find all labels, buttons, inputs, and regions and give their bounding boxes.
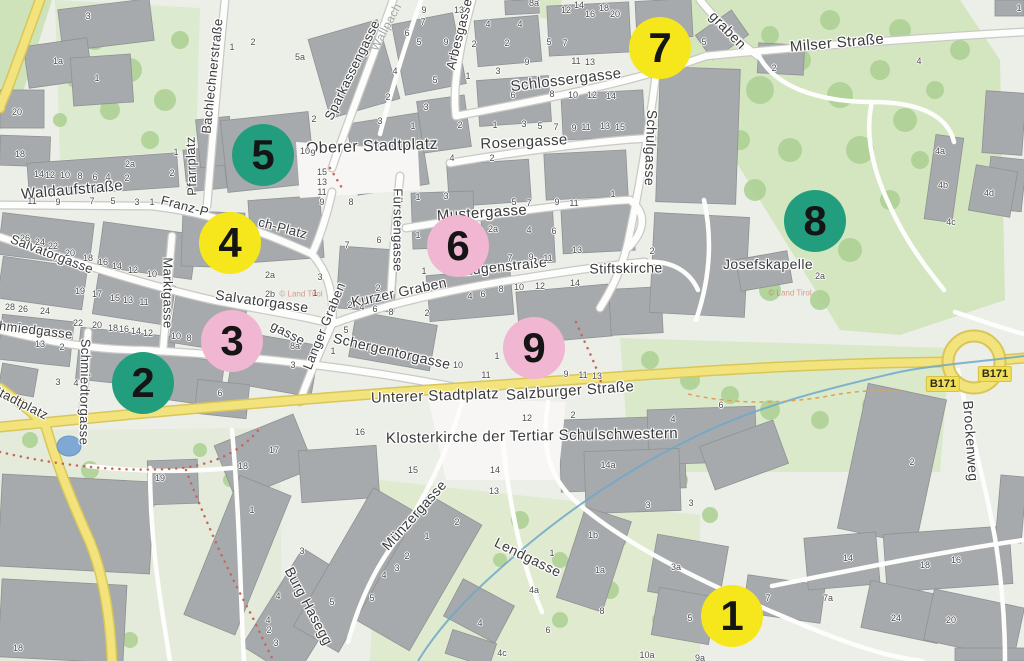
poi-marker-3[interactable]: 3: [201, 310, 263, 372]
poi-marker-4[interactable]: 4: [199, 212, 261, 274]
poi-marker-5[interactable]: 5: [232, 124, 294, 186]
poi-marker-8[interactable]: 8: [784, 190, 846, 252]
poi-marker-2[interactable]: 2: [112, 352, 174, 414]
poi-marker-6[interactable]: 6: [427, 215, 489, 277]
map-markers-layer: 123456789: [0, 0, 1024, 661]
poi-marker-9[interactable]: 9: [503, 317, 565, 379]
map-canvas[interactable]: WaldaufstraßeFranz-Pch-PlatzPfarrplatzBa…: [0, 0, 1024, 661]
poi-marker-7[interactable]: 7: [629, 17, 691, 79]
poi-marker-1[interactable]: 1: [701, 585, 763, 647]
